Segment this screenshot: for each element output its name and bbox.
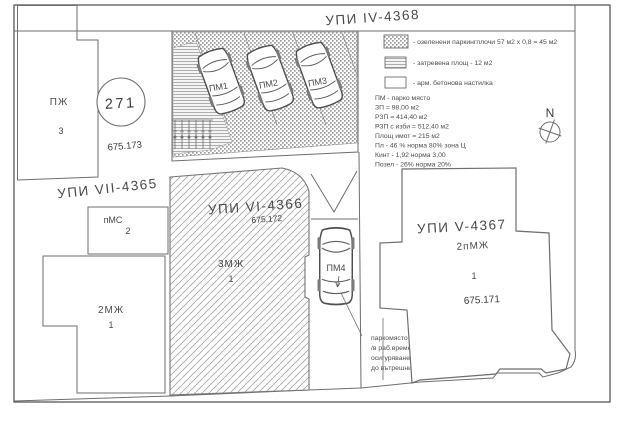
- parking-spot-pm4-label: ПМ4: [327, 263, 346, 273]
- parcel-v-type: 2пМЖ: [456, 240, 489, 253]
- stats-line-4: РЗП с изби = 512,40 м2: [375, 123, 449, 131]
- building-pms-number: 2: [125, 226, 130, 236]
- stats-line-1: ПМ - парко място: [375, 95, 430, 102]
- parcel-v-number: 1: [471, 271, 476, 281]
- building-pms-label: пМС: [104, 215, 123, 225]
- stats-line-7: Кинт - 1,92 норма 3,00: [375, 152, 446, 159]
- stats-line-5: Площ имот = 215 м2: [375, 133, 440, 140]
- stats-line-3: РЗП = 414,40 м2: [375, 114, 427, 121]
- building-pj-label: ПЖ: [50, 97, 68, 108]
- building-mj2-label: 2МЖ: [98, 305, 124, 316]
- legend-label-grass: - затревена площ - 12 м2: [413, 60, 493, 67]
- legend-swatch-concrete: [385, 77, 406, 88]
- building-mj2-number: 1: [108, 320, 113, 330]
- building-mj3-label: 3МЖ: [218, 259, 244, 270]
- legend-swatch-green-pavers: [384, 35, 408, 48]
- parcel-v-elevation: 675.171: [464, 294, 501, 307]
- site-plan-drawing: УПИ IV-4368 ПЖ 3 271 675.173 УПИ VII-436…: [0, 0, 640, 422]
- north-label: N: [546, 106, 555, 120]
- stats-line-8: Позел - 26% норма 20%: [375, 162, 451, 169]
- survey-point-number: 271: [105, 95, 137, 113]
- building-pj-number: 3: [58, 126, 63, 136]
- legend-swatch-grass: [385, 57, 406, 68]
- stats-line-6: Пл - 46 % норма 80% зона Ц: [375, 143, 466, 150]
- legend-label-green-pavers: - озеленени паркингплочи 57 м2 х 0,8 = 4…: [413, 39, 557, 46]
- site-plan-page: УПИ IV-4368 ПЖ 3 271 675.173 УПИ VII-436…: [0, 0, 640, 422]
- stats-line-2: ЗП = 98,00 м2: [375, 105, 419, 112]
- legend-label-concrete: - арм. бетонова настилка: [413, 79, 493, 87]
- parking-lot: ПМ1 ПМ2 ПМ3: [172, 31, 375, 161]
- building-mj3-number: 1: [228, 274, 233, 284]
